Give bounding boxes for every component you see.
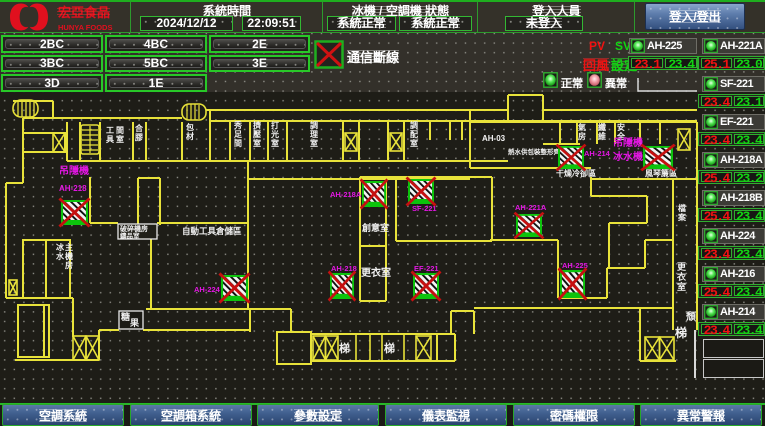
svg-text:EF-221: EF-221	[414, 264, 439, 273]
svg-text:纖維: 纖維	[598, 122, 606, 141]
svg-text:吊隱機: 吊隱機	[613, 136, 643, 149]
svg-text:吊隱機: 吊隱機	[59, 164, 89, 177]
svg-text:AH-224: AH-224	[194, 285, 221, 294]
svg-text:熱水供包裝整形齊: 熱水供包裝整形齊	[508, 147, 561, 156]
svg-text:創意室: 創意室	[361, 222, 389, 233]
svg-text:主機房: 主機房	[65, 242, 73, 270]
svg-text:冰水: 冰水	[55, 242, 65, 261]
svg-text:頹: 頹	[686, 310, 696, 323]
svg-text:調理室: 調理室	[310, 120, 318, 148]
svg-text:AH-221A: AH-221A	[515, 203, 547, 212]
svg-text:自動工具倉儲區: 自動工具倉儲區	[182, 226, 242, 236]
svg-text:SF-221: SF-221	[412, 204, 437, 213]
svg-text:梯: 梯	[675, 325, 687, 340]
svg-text:AH-225: AH-225	[562, 261, 588, 270]
svg-text:打光室: 打光室	[270, 120, 279, 148]
svg-text:AH-214: AH-214	[584, 149, 611, 158]
svg-text:秀足間: 秀足間	[233, 120, 243, 148]
svg-text:梯: 梯	[384, 341, 395, 355]
svg-text:糖: 糖	[121, 311, 130, 322]
svg-text:HUNYA FOODS: HUNYA FOODS	[58, 23, 112, 32]
svg-text:干燥冷卻區: 干燥冷卻區	[556, 168, 596, 178]
svg-text:間室: 間室	[116, 126, 124, 144]
svg-text:AH-218A: AH-218A	[330, 190, 362, 199]
svg-text:冰水機: 冰水機	[613, 150, 643, 163]
svg-text:檔案: 檔案	[677, 203, 687, 222]
svg-text:擠壓室: 擠壓室	[253, 120, 261, 148]
svg-text:破碎機房: 破碎機房	[120, 224, 148, 233]
svg-text:AH-218: AH-218	[59, 184, 87, 193]
svg-text:調配室: 調配室	[410, 120, 418, 148]
svg-text:工具: 工具	[106, 126, 114, 144]
svg-text:果: 果	[129, 318, 140, 328]
svg-text:AH-218: AH-218	[331, 264, 357, 273]
svg-text:包材: 包材	[185, 122, 194, 141]
svg-text:氣房: 氣房	[578, 122, 586, 141]
svg-text:更衣室: 更衣室	[361, 266, 391, 279]
svg-text:鑄品室: 鑄品室	[119, 231, 140, 240]
svg-text:合膠: 合膠	[134, 123, 144, 142]
svg-text:梯: 梯	[339, 341, 350, 355]
svg-text:AH-03: AH-03	[482, 134, 506, 143]
svg-text:更衣室: 更衣室	[677, 262, 687, 292]
